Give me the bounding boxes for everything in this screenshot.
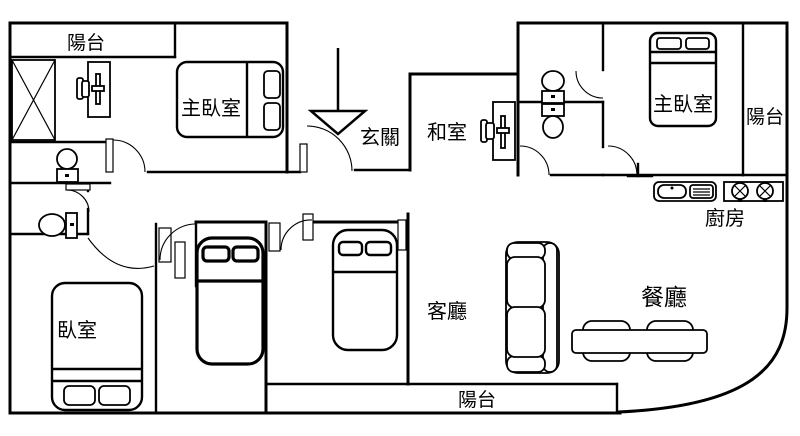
label-balcony-top-left: 陽台 <box>67 32 105 54</box>
entrance-arrow <box>311 48 365 134</box>
sofa <box>506 242 559 373</box>
label-balcony-bottom: 陽台 <box>458 389 496 411</box>
door-master-right <box>608 146 637 175</box>
closet <box>12 60 55 140</box>
label-tatami-room: 和室 <box>427 120 467 144</box>
desk-computer-top-left <box>77 62 110 117</box>
door-bathroom-lower-left <box>66 184 90 212</box>
label-bedroom: 臥室 <box>57 318 97 342</box>
label-kitchen: 廚房 <box>705 206 745 230</box>
floor-plan-svg: 陽台 主臥室 玄關 和室 主臥室 陽台 廚房 客廳 餐廳 臥室 陽台 <box>0 0 800 436</box>
label-balcony-right: 陽台 <box>746 106 784 128</box>
toilet-right-lower <box>542 104 564 138</box>
toilet-right-upper <box>542 71 564 103</box>
bed-a <box>197 238 263 364</box>
door-bedroom-b <box>269 214 313 251</box>
label-dining-room: 餐廳 <box>641 285 687 311</box>
label-entry: 玄關 <box>360 125 400 149</box>
desk-computer-tatami <box>481 102 515 160</box>
bed-b <box>333 230 397 350</box>
label-living-room: 客廳 <box>427 299 467 323</box>
toilet-lower-left <box>39 213 77 238</box>
toilet-top-left <box>57 149 78 182</box>
door-bathroom-right-lower <box>520 146 549 175</box>
door-entry <box>300 126 352 172</box>
floor-plan: 陽台 主臥室 玄關 和室 主臥室 陽台 廚房 客廳 餐廳 臥室 陽台 <box>0 0 800 436</box>
label-master-bedroom-left: 主臥室 <box>181 96 241 120</box>
dining-set <box>572 321 707 361</box>
bed-bedroom-left <box>52 283 142 410</box>
door-bathroom-right-upper <box>576 71 603 98</box>
kitchen-sink <box>654 182 716 201</box>
kitchen-stove <box>724 182 783 202</box>
door-corridor-living <box>398 220 406 250</box>
label-master-bedroom-right: 主臥室 <box>653 92 713 116</box>
door-bathroom-top-left <box>106 139 145 172</box>
